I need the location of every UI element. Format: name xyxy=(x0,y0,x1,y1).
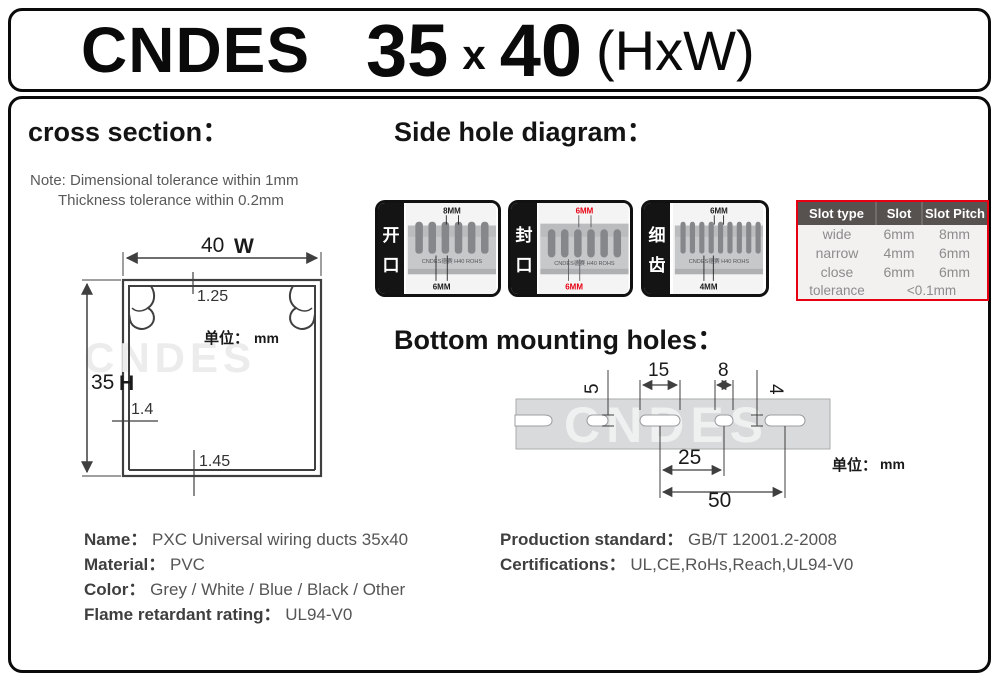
unit-label: 单位： xyxy=(832,456,877,474)
dim50-value: 50 xyxy=(708,489,731,508)
cell-type: wide xyxy=(798,225,876,244)
bottom-thickness-value: 1.45 xyxy=(199,453,230,470)
col-header-slot: Slot xyxy=(876,202,922,225)
photo-fine-top-dim: 6MM xyxy=(710,206,728,215)
edge-notch-slot xyxy=(515,415,552,426)
photo-open-top-dim: 8MM xyxy=(443,206,461,215)
photo-fine-label-band: 细 齿 xyxy=(644,203,670,294)
unit-label: 单位： xyxy=(204,329,249,347)
size-times: x xyxy=(462,21,485,79)
col-header-slot-type: Slot type xyxy=(798,202,876,225)
photo-fine-char-2: 齿 xyxy=(649,251,666,276)
brand-text: CNDES xyxy=(81,13,310,87)
side-hole-heading: Side hole diagram： xyxy=(394,118,654,148)
slot-small-1 xyxy=(587,415,608,426)
table-row: wide 6mm 8mm xyxy=(798,225,987,244)
photo-closed-graphic: CNDES德赛 H40 ROHS 6MM 6MM xyxy=(537,203,630,294)
photo-fine-bottom-dim: 4MM xyxy=(700,282,718,291)
slot-spec-table: Slot type Slot Slot Pitch wide 6mm 8mm n… xyxy=(796,200,989,301)
spec-certifications-value: UL,CE,RoHs,Reach,UL94-V0 xyxy=(630,555,853,574)
tolerance-note: Note: Dimensional tolerance within 1mm T… xyxy=(30,171,298,211)
table-row: close 6mm 6mm xyxy=(798,263,987,282)
spec-flame-rating-value: UL94-V0 xyxy=(285,605,352,624)
product-specs-left: Name： PXC Universal wiring ducts 35x40 M… xyxy=(84,527,408,627)
spec-certifications-label: Certifications： xyxy=(500,555,626,574)
photo-closed-top-dim: 6MM xyxy=(576,206,594,215)
photo-closed-char-2: 口 xyxy=(516,251,533,276)
cell-slot: 6mm xyxy=(876,263,922,282)
spec-name-label: Name： xyxy=(84,530,147,549)
photo-closed-char-1: 封 xyxy=(516,221,533,246)
photo-closed-bottom-dim: 6MM xyxy=(565,282,583,291)
photo-closed-label-band: 封 口 xyxy=(511,203,537,294)
spec-color: Color： Grey / White / Blue / Black / Oth… xyxy=(84,577,408,602)
photo-open-bottom-dim: 6MM xyxy=(433,282,451,291)
note-line-2: Thickness tolerance within 0.2mm xyxy=(30,191,298,211)
size-suffix: (HxW) xyxy=(596,18,755,83)
cell-pitch: 8mm xyxy=(922,225,987,244)
cell-slot: 6mm xyxy=(876,225,922,244)
spec-color-label: Color： xyxy=(84,580,145,599)
photo-fine-char-1: 细 xyxy=(649,221,666,246)
size-width: 40 xyxy=(500,8,582,93)
width-dim-value: 40 xyxy=(201,234,224,257)
header-title-box: CNDES 35 x 40 (HxW) xyxy=(8,8,991,92)
bottom-holes-heading: Bottom mounting holes： xyxy=(394,326,724,356)
photo-open-char-1: 开 xyxy=(383,221,400,246)
spec-material-label: Material： xyxy=(84,555,165,574)
slot-large-2 xyxy=(765,415,805,426)
table-row-tolerance: tolerance <0.1mm xyxy=(798,282,987,299)
slot-large-1 xyxy=(640,415,680,426)
spec-name: Name： PXC Universal wiring ducts 35x40 xyxy=(84,527,408,552)
cell-type: close xyxy=(798,263,876,282)
cell-type: narrow xyxy=(798,244,876,263)
spec-name-value: PXC Universal wiring ducts 35x40 xyxy=(152,530,408,549)
spec-standard-label: Production standard： xyxy=(500,530,683,549)
top-thickness-value: 1.25 xyxy=(197,288,228,305)
side-hole-photo-closed: 封 口 CNDES德赛 H40 ROHS 6MM 6MM xyxy=(508,200,633,297)
dim25-value: 25 xyxy=(678,446,701,469)
photo-open-label-band: 开 口 xyxy=(378,203,404,294)
dim4-value: 4 xyxy=(765,384,786,395)
slot-small-2 xyxy=(715,415,733,426)
unit-value: mm xyxy=(880,456,905,472)
spec-standard-value: GB/T 12001.2-2008 xyxy=(688,530,837,549)
side-hole-photo-fine: 细 齿 CNDES德赛 H40 ROHS 6MM 4MM xyxy=(641,200,769,297)
cross-section-heading: cross section： xyxy=(28,118,229,148)
side-thickness-value: 1.4 xyxy=(131,401,153,418)
note-line-1: Note: Dimensional tolerance within 1mm xyxy=(30,171,298,191)
product-specs-right: Production standard： GB/T 12001.2-2008 C… xyxy=(500,527,853,577)
cell-tolerance-label: tolerance xyxy=(798,282,876,299)
col-header-slot-pitch: Slot Pitch xyxy=(922,202,987,225)
side-hole-photo-open: 开 口 CNDES德赛 H40 ROHS 8MM 6MM xyxy=(375,200,501,297)
spec-material-value: PVC xyxy=(170,555,205,574)
cell-pitch: 6mm xyxy=(922,263,987,282)
spec-standard: Production standard： GB/T 12001.2-2008 xyxy=(500,527,853,552)
spec-flame-rating-label: Flame retardant rating： xyxy=(84,605,281,624)
size-height: 35 xyxy=(366,8,448,93)
photo-closed-duct-text: CNDES德赛 H40 ROHS xyxy=(554,259,615,267)
dim15-value: 15 xyxy=(648,360,669,381)
unit-value: mm xyxy=(254,330,279,346)
spec-certifications: Certifications： UL,CE,RoHs,Reach,UL94-V0 xyxy=(500,552,853,577)
height-dim-label: H xyxy=(119,372,134,395)
photo-open-graphic: CNDES德赛 H40 ROHS 8MM 6MM xyxy=(404,203,498,294)
cell-tolerance-value: <0.1mm xyxy=(876,282,987,299)
photo-fine-duct-text: CNDES德赛 H40 ROHS xyxy=(689,257,750,265)
photo-open-duct-text: CNDES德赛 H40 ROHS xyxy=(422,257,483,265)
photo-open-char-2: 口 xyxy=(383,251,400,276)
photo-fine-graphic: CNDES德赛 H40 ROHS 6MM 4MM xyxy=(670,203,766,294)
spec-flame-rating: Flame retardant rating： UL94-V0 xyxy=(84,602,408,627)
spec-material: Material： PVC xyxy=(84,552,408,577)
cross-section-drawing: CNDES 40 W 35 H 1.25 1.4 1.45 单位： mm xyxy=(58,228,383,518)
dim8-value: 8 xyxy=(718,360,729,381)
table-row: narrow 4mm 6mm xyxy=(798,244,987,263)
bottom-holes-drawing: CNDES 15 8 5 4 25 50 单位： mm xyxy=(480,358,960,508)
cell-pitch: 6mm xyxy=(922,244,987,263)
spec-color-value: Grey / White / Blue / Black / Other xyxy=(150,580,405,599)
width-dim-label: W xyxy=(234,235,254,258)
datasheet-page: CNDES 35 x 40 (HxW) cross section： Note:… xyxy=(0,0,1000,683)
height-dim-value: 35 xyxy=(91,371,114,394)
cell-slot: 4mm xyxy=(876,244,922,263)
dim5-value: 5 xyxy=(582,383,603,394)
